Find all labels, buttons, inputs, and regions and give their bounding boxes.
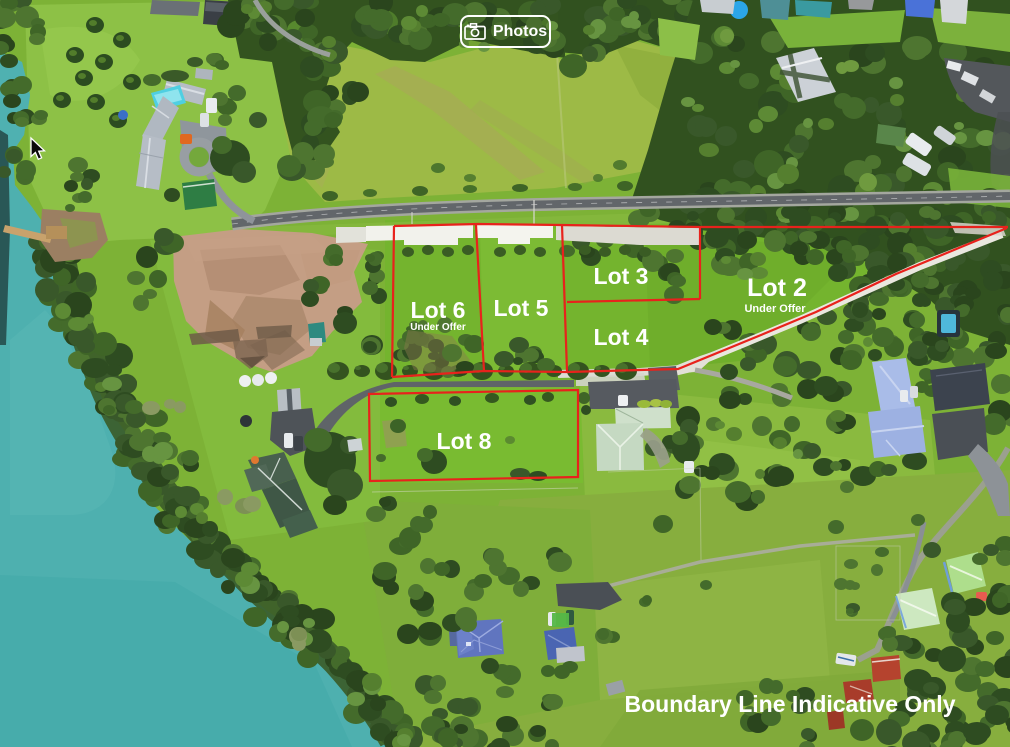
svg-text:Lot 3: Lot 3	[594, 263, 649, 289]
svg-text:Lot 8: Lot 8	[437, 428, 492, 454]
svg-text:Lot 4: Lot 4	[594, 324, 649, 350]
svg-text:Under Offer: Under Offer	[744, 303, 806, 315]
svg-text:Lot 6: Lot 6	[411, 297, 466, 323]
svg-text:Boundary Line Indicative Only: Boundary Line Indicative Only	[624, 691, 955, 717]
svg-text:Lot 5: Lot 5	[494, 295, 549, 321]
svg-text:Under Offer: Under Offer	[410, 322, 466, 333]
svg-text:Lot 2: Lot 2	[747, 274, 807, 302]
